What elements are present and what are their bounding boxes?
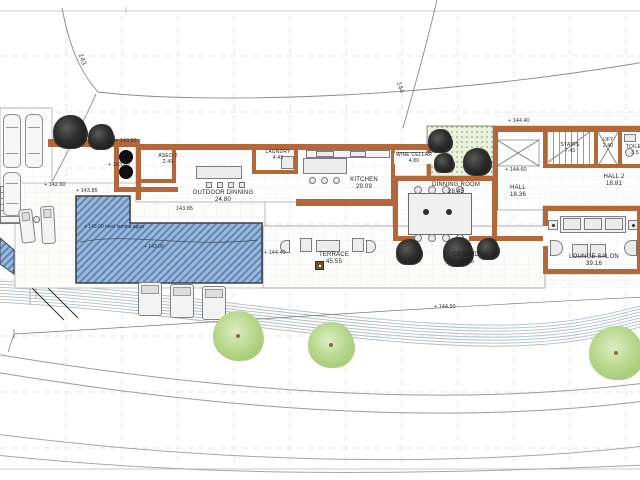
stool xyxy=(333,177,340,184)
level-marker: + 142.60 xyxy=(44,182,66,188)
room-area: 45.55 xyxy=(312,259,356,266)
room-label-laundry: LAUNDRY 4.43 xyxy=(256,150,300,161)
kitchen-island xyxy=(303,158,347,174)
sun-lounger xyxy=(170,284,194,318)
stool xyxy=(239,182,245,188)
room-label-outdoor-dinning: OUTDOOR DINNING 24.80 xyxy=(188,190,258,203)
stool xyxy=(321,177,328,184)
level-marker: + 143.50 xyxy=(115,138,137,144)
car xyxy=(25,114,43,168)
room-name: LOUNGE SALON xyxy=(566,254,622,261)
tree xyxy=(308,322,354,368)
level-marker: + 144.40 xyxy=(508,118,530,124)
pool-level-label: + 143.00 nivel lamina agua xyxy=(84,224,144,230)
wall xyxy=(296,199,396,206)
room-label-dinning-room: DINNING ROOM 28.45 xyxy=(420,182,492,195)
lamp xyxy=(632,224,635,227)
stool xyxy=(228,182,234,188)
sofa-cushion xyxy=(584,218,602,230)
terrace-table xyxy=(316,240,340,252)
chair xyxy=(428,234,436,242)
room-label-hall2: HALL 2 18.81 xyxy=(592,174,636,187)
room-area: 7.43 xyxy=(548,149,592,155)
room-label-lounge-salon: LOUNGE SALON 39.16 xyxy=(566,254,622,267)
wall xyxy=(393,176,398,241)
armchair xyxy=(624,240,637,256)
terrace-chair xyxy=(352,238,364,252)
terrace-chair xyxy=(300,238,312,252)
sink xyxy=(350,151,366,157)
tree xyxy=(53,115,87,149)
room-label-toilet: TOILET 3.5 xyxy=(622,145,640,156)
road-lines xyxy=(0,354,640,472)
table-plant xyxy=(446,209,452,215)
room-area: 45.55 xyxy=(444,259,488,266)
washbasin xyxy=(624,134,636,142)
outdoor-dining-table xyxy=(196,166,242,179)
cooktop xyxy=(316,151,334,157)
floor-plan-sheet: ASEO 2 2.49 OUTDOOR DINNING 24.80 LAUNDR… xyxy=(0,0,640,480)
room-label-stairs: STAIRS 7.43 xyxy=(548,143,592,154)
tree xyxy=(463,148,491,176)
wall xyxy=(543,206,640,211)
wall xyxy=(136,144,141,200)
stool xyxy=(206,182,212,188)
tree xyxy=(434,153,454,173)
wall xyxy=(252,170,298,174)
side-table xyxy=(33,216,40,223)
stool xyxy=(309,177,316,184)
room-area: 2.40 xyxy=(596,144,620,150)
sun-lounger xyxy=(40,206,56,245)
room-label-aseo2: ASEO 2 2.49 xyxy=(148,154,188,165)
tree xyxy=(589,326,640,380)
sofa-cushion xyxy=(563,218,581,230)
room-area: 18.81 xyxy=(592,181,636,188)
room-area: 3.5 xyxy=(622,151,640,157)
room-name: OUTDOOR DINNING xyxy=(188,190,258,197)
wall xyxy=(493,126,498,210)
room-area: 24.80 xyxy=(188,197,258,204)
room-label-lift: LIFT 2.40 xyxy=(596,138,620,149)
room-area: 29.09 xyxy=(340,184,388,191)
level-marker: 143.85 xyxy=(176,206,193,212)
dining-table xyxy=(408,193,472,235)
wall xyxy=(114,187,178,192)
wall xyxy=(543,164,640,168)
wall xyxy=(140,179,176,183)
level-marker: + 144.60 xyxy=(505,167,527,173)
lamp xyxy=(552,224,555,227)
tree xyxy=(396,239,422,265)
wall xyxy=(543,269,640,274)
room-label-cesped: CESPED 45.55 xyxy=(444,252,488,265)
tree xyxy=(213,311,263,361)
level-marker: + 143.60 xyxy=(108,162,130,168)
room-area: 18.36 xyxy=(500,192,536,199)
room-label-hall: HALL 18.36 xyxy=(500,185,536,198)
room-label-terrace: TERRACE 45.55 xyxy=(312,252,356,265)
level-marker: + 144.40 xyxy=(264,250,286,256)
sun-lounger xyxy=(138,282,162,316)
level-marker: + 144.50 xyxy=(434,304,456,310)
tree xyxy=(428,129,452,153)
room-area: 2.49 xyxy=(148,160,188,166)
sofa-cushion xyxy=(605,218,623,230)
room-area: 4.80 xyxy=(394,159,434,165)
room-area: 28.45 xyxy=(420,189,492,196)
room-area: 39.16 xyxy=(566,261,622,268)
room-label-wine-cellar: WINE CELLAR 4.80 xyxy=(394,153,434,164)
level-marker: + 143.85 xyxy=(76,188,98,194)
wall xyxy=(393,176,497,181)
stool xyxy=(217,182,223,188)
room-area: 4.43 xyxy=(256,156,300,162)
tree xyxy=(88,124,114,150)
pool-level-label: + 143.00 xyxy=(144,244,164,250)
table-plant xyxy=(423,209,429,215)
room-label-kitchen: KITCHEN 29.09 xyxy=(340,177,388,190)
car xyxy=(3,114,21,168)
